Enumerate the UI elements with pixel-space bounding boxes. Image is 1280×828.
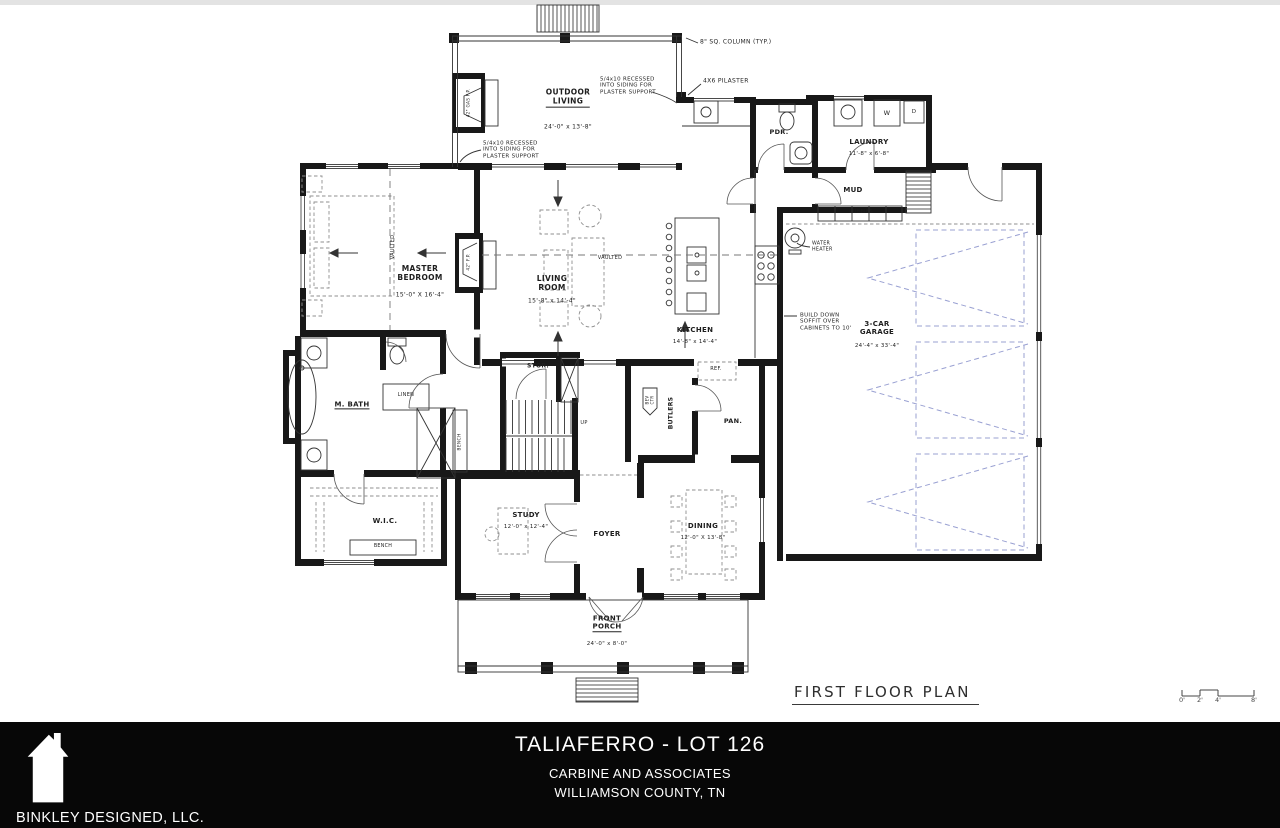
ann-water-heater: WATERHEATER bbox=[812, 241, 833, 252]
room-storage: STOR. bbox=[527, 362, 549, 369]
lbl-linen: LINEN bbox=[398, 393, 414, 399]
room-front-porch: FRONTPORCH bbox=[593, 614, 622, 632]
room-study: STUDY bbox=[512, 511, 539, 519]
lbl-beverage-center: BEVCTR bbox=[645, 396, 654, 405]
lbl-washer: W bbox=[884, 110, 891, 118]
dim-living: 15'-8" x 14'-4" bbox=[528, 297, 576, 304]
lbl-cubbies: CUBBIES bbox=[849, 210, 873, 216]
lbl-fireplace: 42" F.P. bbox=[467, 253, 472, 270]
room-kitchen: KITCHEN bbox=[677, 326, 714, 334]
scale-label-0: 0' bbox=[1179, 696, 1185, 704]
room-master-bedroom: MASTERBEDROOM bbox=[397, 265, 442, 283]
dim-laundry: 11'-8" x 6'-8" bbox=[849, 151, 890, 157]
room-foyer: FOYER bbox=[593, 530, 620, 538]
room-garage: 3-CARGARAGE bbox=[860, 320, 894, 337]
dim-kitchen: 14'-8" x 14'-4" bbox=[673, 339, 717, 345]
room-mud: MUD bbox=[843, 186, 862, 194]
project-title: TALIAFERRO - LOT 126 bbox=[515, 733, 765, 757]
furniture bbox=[302, 176, 1034, 580]
room-living: LIVINGROOM bbox=[537, 275, 567, 293]
room-dining: DINING bbox=[688, 522, 718, 530]
slope-arrows bbox=[330, 180, 689, 356]
floor-plan-drawing bbox=[0, 0, 1280, 722]
room-closet: W.I.C. bbox=[373, 517, 398, 525]
first-floor-plan: OUTDOORLIVING24'-0" x 13'-8"8" SQ. COLUM… bbox=[0, 0, 1280, 722]
garage-bay-markings bbox=[868, 230, 1028, 550]
room-outdoor-living: OUTDOORLIVING bbox=[546, 89, 590, 108]
dim-outdoor-living: 24'-0" x 13'-8" bbox=[544, 123, 592, 130]
room-master-bath: M. BATH bbox=[334, 400, 369, 409]
house-logo-icon bbox=[26, 729, 70, 803]
dim-garage: 24'-4" x 33'-4" bbox=[855, 343, 899, 349]
walls bbox=[283, 33, 1042, 674]
ann-pilaster: 4X6 PILASTER bbox=[703, 77, 749, 84]
room-pantry: PAN. bbox=[724, 418, 742, 426]
ann-soffit: BUILD DOWNSOFFIT OVERCABINETS TO 10' bbox=[800, 312, 852, 331]
ann-recessed-left: 5/4x10 RECESSEDINTO SIDING FORPLASTER SU… bbox=[483, 140, 539, 159]
dim-front-porch: 24'-0" x 8'-0" bbox=[587, 641, 628, 647]
dim-study: 12'-0" x 12'-4" bbox=[504, 524, 548, 530]
project-location: WILLIAMSON COUNTY, TN bbox=[515, 785, 765, 800]
lbl-stairs-up: UP bbox=[580, 421, 587, 427]
scale-label-8: 8' bbox=[1251, 696, 1257, 704]
graphic-scale-bar: 0' 2' 4' 8' bbox=[1180, 684, 1260, 706]
title-block: BINKLEY DESIGNED, LLC. TALIAFERRO - LOT … bbox=[0, 722, 1280, 828]
dim-dining: 12'-0" X 13'-8" bbox=[681, 535, 726, 541]
room-butlers: BUTLERS bbox=[667, 397, 674, 430]
scale-label-2: 2' bbox=[1197, 696, 1203, 704]
scale-label-4: 4' bbox=[1215, 696, 1221, 704]
lbl-bench: BENCH bbox=[374, 544, 392, 550]
lbl-vaulted-master: VAULTED bbox=[391, 235, 397, 259]
room-powder: PDR. bbox=[770, 129, 789, 137]
company-name: BINKLEY DESIGNED, LLC. bbox=[16, 810, 204, 826]
lbl-dryer: D bbox=[912, 109, 917, 115]
builder-name: CARBINE AND ASSOCIATES bbox=[515, 766, 765, 781]
drawing-caption: FIRST FLOOR PLAN bbox=[792, 683, 979, 705]
ann-recessed-right: 5/4x10 RECESSEDINTO SIDING FORPLASTER SU… bbox=[600, 76, 656, 95]
room-laundry: LAUNDRY bbox=[849, 138, 888, 146]
project-info: TALIAFERRO - LOT 126 CARBINE AND ASSOCIA… bbox=[515, 733, 765, 800]
ann-sq-column: 8" SQ. COLUMN (TYP.) bbox=[700, 38, 771, 45]
dim-master-bedroom: 15'-0" X 16'-4" bbox=[396, 291, 444, 298]
lbl-vaulted-living: VAULTED bbox=[598, 256, 622, 262]
lbl-refrigerator: REF. bbox=[710, 367, 722, 373]
lbl-gas-fireplace: 42" GAS F.P. bbox=[467, 89, 472, 118]
lbl-bench-vertical: BENCH bbox=[457, 433, 462, 450]
